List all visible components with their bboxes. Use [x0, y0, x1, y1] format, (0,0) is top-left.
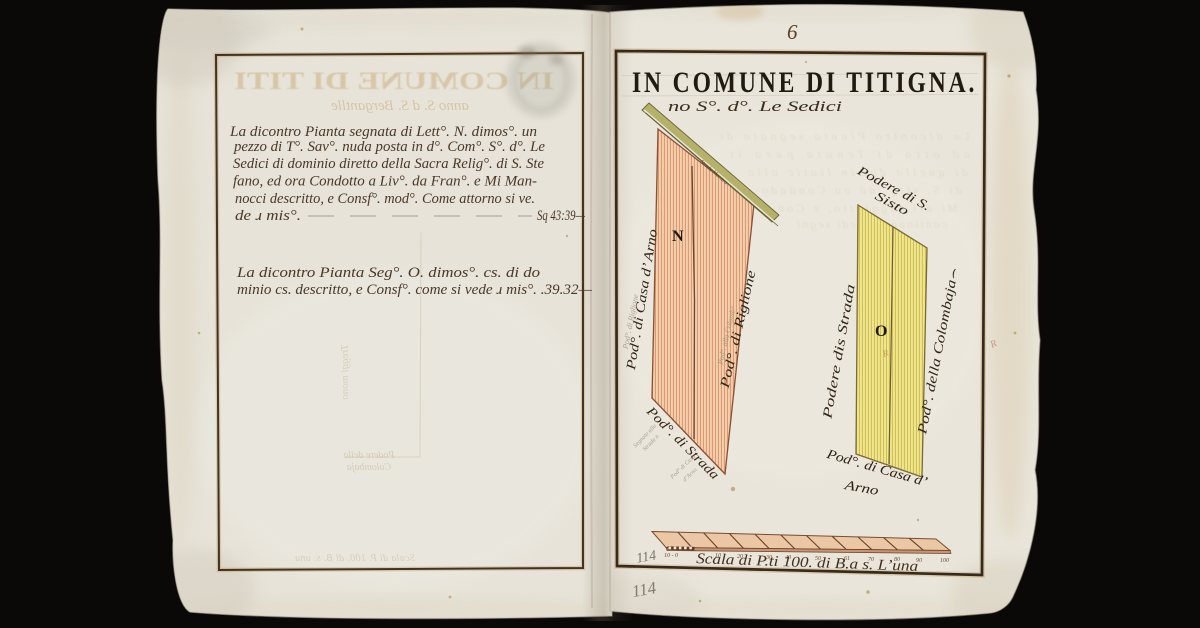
svg-text:La dicontro Pianta Seg°. O. di: La dicontro Pianta Seg°. O. dimos°. cs. …: [236, 265, 540, 281]
svg-text:La dicontro Pianta segnata di: La dicontro Pianta segnata di: [720, 129, 971, 143]
svg-text:minio cs. descritto, e Consf°.: minio cs. descritto, e Consf°. come si v…: [237, 282, 592, 298]
svg-text:10 - 0: 10 - 0: [664, 553, 678, 559]
svg-text:6: 6: [787, 20, 798, 44]
svg-text:nocci descritto, e Consf°. mod: nocci descritto, e Consf°. mod°. Come at…: [235, 191, 535, 207]
svg-text:N: N: [672, 228, 684, 245]
svg-text:anno S. d S. Bergantlle: anno S. d S. Bergantlle: [331, 98, 469, 114]
svg-text:pezzo di T°. Sav°. nuda posta: pezzo di T°. Sav°. nuda posta in d°. Com…: [233, 139, 546, 155]
svg-text:100: 100: [940, 558, 949, 564]
svg-text:fano, ed ora Condotto a Liv°.: fano, ed ora Condotto a Liv°. da Fran°. …: [233, 174, 537, 190]
svg-text:de ɹ mis°.: de ɹ mis°.: [235, 208, 301, 224]
svg-text:Podere della: Podere della: [343, 450, 395, 461]
svg-text:Colombaja: Colombaja: [347, 462, 391, 473]
svg-text:Scala di P. 100. di B. s. una: Scala di P. 100. di B. s. una: [295, 553, 415, 564]
svg-text:Sedici di dominio diretto dell: Sedici di dominio diretto della Sacra Re…: [233, 156, 545, 172]
svg-text:Treggi mono: Treggi mono: [339, 344, 351, 400]
svg-text:no S°. d°. Le Sedici: no S°. d°. Le Sedici: [668, 99, 842, 115]
svg-text:La dicontro Pianta segnata di: La dicontro Pianta segnata di Lett°. N. …: [229, 124, 537, 140]
svg-text:O: O: [875, 323, 887, 340]
svg-text:Sq 43:39—: Sq 43:39—: [537, 208, 585, 224]
